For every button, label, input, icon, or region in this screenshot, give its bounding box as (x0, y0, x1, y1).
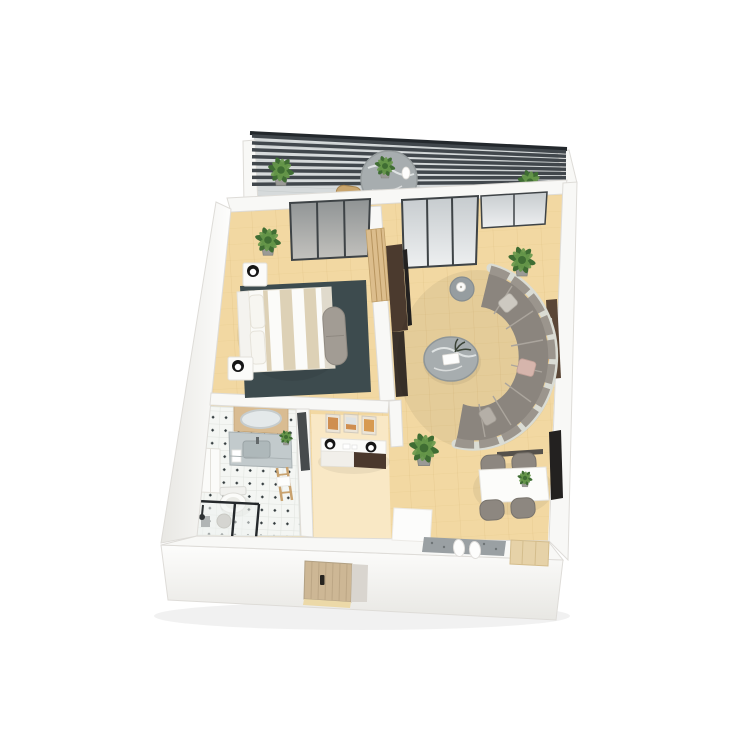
faucet (256, 437, 259, 444)
console-dark-drawers (354, 452, 386, 469)
side-table-with-lamp (450, 277, 474, 301)
pillow (249, 295, 265, 329)
living-glass-door-a (402, 196, 478, 268)
picture-frames (326, 414, 376, 435)
wall-entry-living-stub (389, 400, 403, 447)
bw-table-lamp (232, 360, 244, 372)
nightstand-north (243, 263, 267, 286)
dining-chair (479, 499, 504, 521)
floorplan-render (0, 0, 756, 756)
coffee-table (424, 337, 478, 381)
bw-table-lamp (366, 442, 377, 453)
decor-box (352, 445, 357, 449)
nightstand-south (228, 357, 253, 380)
bench-ottoman (322, 306, 348, 365)
white-rug (392, 508, 432, 542)
decor-box (343, 444, 350, 449)
door-handle (320, 575, 325, 585)
bw-table-lamp (247, 265, 259, 277)
entry-door (303, 561, 368, 608)
dining-chair (510, 497, 535, 519)
door-side-panel (351, 564, 368, 602)
bw-table-lamp (325, 439, 336, 450)
white-jug (402, 167, 410, 179)
dining-table (479, 467, 549, 503)
wood-entry-mat (510, 540, 549, 566)
shower-enclosure (197, 501, 259, 538)
ladder-towel (277, 477, 291, 487)
bedroom-glass-door (290, 199, 370, 260)
bathroom (197, 402, 300, 538)
floorplan-svg (0, 0, 756, 756)
oval-mirror (241, 409, 282, 428)
decor-books (442, 353, 459, 365)
shower-head (202, 505, 203, 515)
